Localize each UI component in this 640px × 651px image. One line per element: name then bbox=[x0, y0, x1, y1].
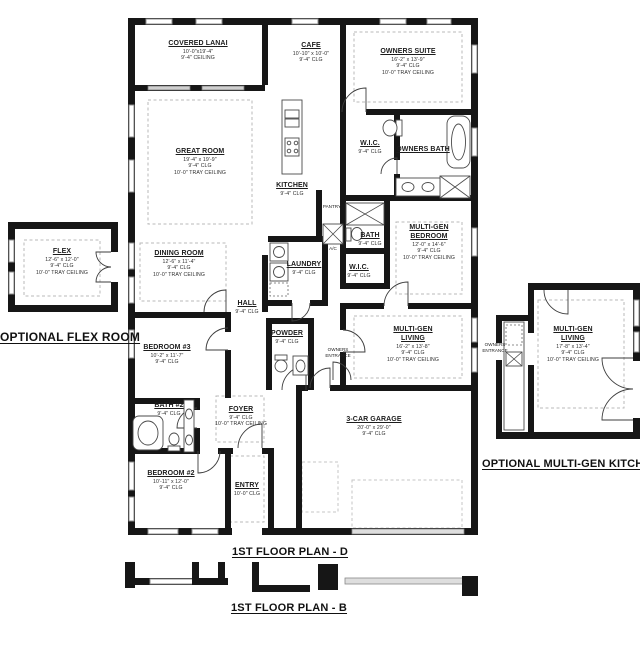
bath2-toilet-icon bbox=[168, 433, 180, 451]
powder-sink-icon bbox=[275, 355, 287, 372]
owners-toilet-icon bbox=[383, 120, 402, 136]
bath2-tub-icon bbox=[133, 416, 163, 450]
section-title-plan-d: 1ST FLOOR PLAN - D bbox=[210, 546, 370, 558]
room-label-opt-multigen-living: MULTI-GEN LIVING 17'-8" x 13'-4" 9'-4" C… bbox=[532, 326, 614, 363]
washer-icon bbox=[270, 243, 288, 261]
room-label-covered-lanai: COVERED LANAI 10'-0"x19'-4" 9'-4" CEILIN… bbox=[148, 40, 248, 62]
room-label-pantry: PANTRY bbox=[316, 204, 348, 210]
room-label-owners-entrance: OWNERS ENTRANCE bbox=[318, 347, 358, 358]
room-label-hall: HALL 9'-4" CLG bbox=[226, 300, 268, 315]
room-label-opt-owners-entrance: OWNERS ENTRANCE bbox=[480, 342, 510, 353]
room-label-cafe: CAFE 10'-10" x 10'-0" 9'-4" CLG bbox=[280, 42, 342, 64]
room-label-owners-bath: OWNERS BATH bbox=[394, 146, 452, 155]
room-label-kitchen: KITCHEN 9'-4" CLG bbox=[264, 182, 320, 197]
room-label-entry: ENTRY 10'-0" CLG bbox=[226, 482, 268, 497]
room-label-great-room: GREAT ROOM 19'-4" x 19'-9" 9'-4" CLG 10'… bbox=[150, 148, 250, 176]
room-label-bedroom3: BEDROOM #3 10'-2" x 11'-7" 9'-4" CLG bbox=[126, 344, 208, 366]
floor-plan-page: COVERED LANAI 10'-0"x19'-4" 9'-4" CEILIN… bbox=[0, 0, 640, 651]
room-label-multigen-living: MULTI-GEN LIVING 16'-2" x 13'-8" 9'-4" C… bbox=[372, 326, 454, 363]
powder-toilet-icon bbox=[293, 356, 308, 375]
room-label-multigen-wic: W.I.C. 9'-4" CLG bbox=[338, 264, 380, 279]
room-label-dining-room: DINING ROOM 12'-6" x 11'-4" 9'-4" CLG 10… bbox=[138, 250, 220, 278]
plan-b-strip bbox=[125, 562, 478, 596]
ac-unit-icon bbox=[323, 224, 343, 244]
kitchen-island bbox=[282, 100, 302, 174]
room-label-flex: FLEX 12'-6" x 12'-0" 9'-4" CLG 10'-0" TR… bbox=[26, 248, 98, 276]
room-label-foyer: FOYER 9'-4" CLG 10'-0" TRAY CEILING bbox=[212, 406, 270, 428]
room-label-laundry: LAUNDRY 9'-4" CLG bbox=[278, 261, 330, 276]
section-title-optional-multigen-kitchen: OPTIONAL MULTI-GEN KITCHEN bbox=[482, 458, 640, 470]
range-icon bbox=[285, 138, 299, 156]
section-title-optional-flex: OPTIONAL FLEX ROOM bbox=[0, 330, 126, 344]
room-label-powder: POWDER 9'-4" CLG bbox=[262, 330, 312, 345]
owners-vanity-sinks bbox=[396, 178, 440, 196]
section-title-plan-b: 1ST FLOOR PLAN - B bbox=[209, 602, 369, 614]
room-label-bath2: BATH #2 9'-4" CLG bbox=[144, 402, 194, 417]
tub-icon bbox=[447, 116, 470, 168]
room-label-owners-suite: OWNERS SUITE 16'-2" x 13'-9" 9'-4" CLG 1… bbox=[356, 48, 460, 76]
opt-kitchen-counter bbox=[504, 322, 524, 430]
room-label-owners-wic: W.I.C. 9'-4" CLG bbox=[348, 140, 392, 155]
multigen-shower-icon bbox=[346, 203, 384, 225]
shower-icon bbox=[440, 176, 470, 198]
room-label-multigen-bedroom: MULTI-GEN BEDROOM 12'-0" x 14'-6" 9'-4" … bbox=[396, 224, 462, 261]
room-label-multigen-bath: BATH 9'-4" CLG bbox=[352, 232, 388, 247]
room-label-garage: 3-CAR GARAGE 20'-0" x 29'-0" 9'-4" CLG bbox=[324, 416, 424, 438]
room-label-bedroom2: BEDROOM #2 10'-11" x 12'-0" 9'-4" CLG bbox=[130, 470, 212, 492]
room-label-ac-closet: A/C bbox=[321, 246, 345, 252]
